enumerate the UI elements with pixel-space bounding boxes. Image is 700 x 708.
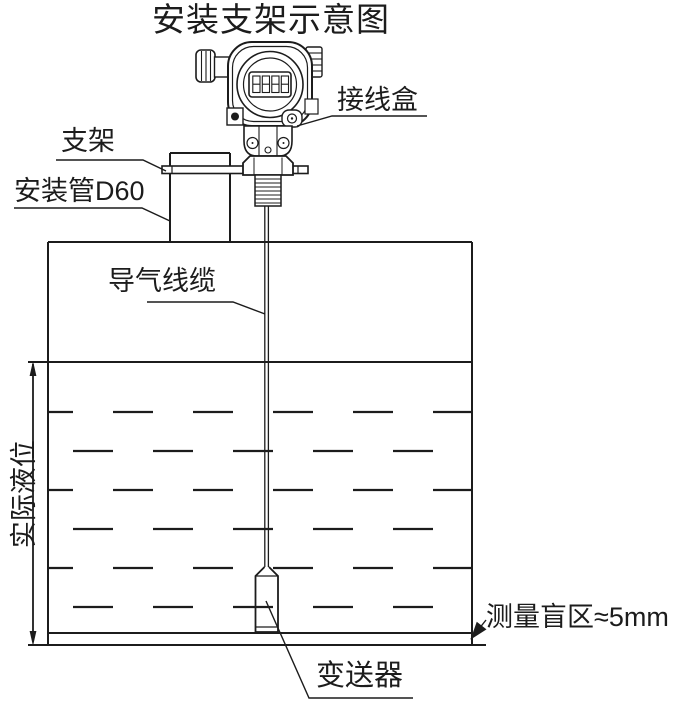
threaded-stem-icon (255, 175, 281, 206)
blind-zone-arrow (471, 620, 486, 639)
transmitter-label: 变送器 (316, 661, 403, 691)
tank-outline (28, 242, 486, 645)
bracket-label: 支架 (61, 127, 115, 155)
lcd-display-icon (249, 72, 291, 97)
air-guide-cable (265, 206, 269, 567)
blind-zone-label: 测量盲区≈5mm (486, 603, 669, 631)
probe-icon (256, 567, 279, 632)
liquid-dashes (48, 412, 472, 607)
page-title: 安装支架示意图 (151, 3, 391, 38)
hex-nut-icon (243, 156, 293, 175)
installation-diagram: 安装支架示意图 接线盒 支架 安装管D60 导气线缆 实际液位 测量盲区≈5mm… (0, 0, 700, 708)
mounting-pipe-label: 安装管D60 (14, 177, 145, 205)
actual-level-label: 实际液位 (10, 432, 38, 556)
air-cable-label: 导气线缆 (108, 267, 216, 295)
bracket-leader (56, 160, 166, 171)
pipe-leader (14, 208, 170, 221)
junction-box-label: 接线盒 (337, 86, 418, 114)
cable-leader (147, 302, 265, 314)
junction-box-leader (297, 116, 427, 126)
